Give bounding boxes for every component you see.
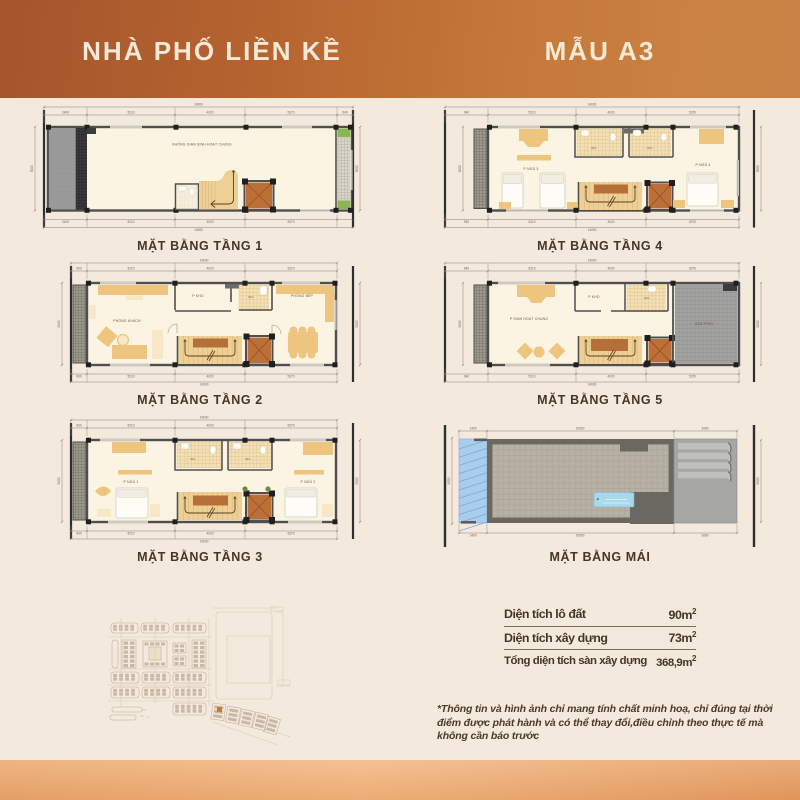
- svg-text:940: 940: [342, 111, 348, 115]
- svg-text:940: 940: [464, 111, 470, 115]
- svg-text:5370: 5370: [287, 424, 294, 428]
- svg-text:3080: 3080: [701, 534, 708, 538]
- svg-text:5370: 5370: [287, 532, 294, 536]
- svg-text:14000: 14000: [194, 228, 203, 232]
- svg-text:5210: 5210: [127, 111, 134, 115]
- svg-text:14000: 14000: [194, 103, 203, 107]
- svg-text:5210: 5210: [127, 267, 134, 271]
- svg-text:5370: 5370: [287, 220, 294, 224]
- svg-text:14000: 14000: [200, 383, 209, 387]
- svg-text:10600: 10600: [576, 534, 585, 538]
- svg-text:P NGỦ 4: P NGỦ 4: [696, 162, 711, 167]
- svg-text:4020: 4020: [206, 220, 213, 224]
- svg-text:14000: 14000: [200, 416, 209, 420]
- svg-text:5370: 5370: [689, 111, 696, 115]
- svg-text:900: 900: [76, 532, 82, 536]
- svg-text:5370: 5370: [287, 375, 294, 379]
- svg-text:PHÒNG KHÁCH: PHÒNG KHÁCH: [113, 318, 141, 323]
- svg-text:WC: WC: [248, 295, 254, 299]
- svg-text:4020: 4020: [206, 111, 213, 115]
- svg-text:P KHO: P KHO: [192, 294, 204, 298]
- svg-text:5370: 5370: [287, 267, 294, 271]
- svg-text:4020: 4020: [607, 220, 614, 224]
- svg-text:5210: 5210: [528, 220, 535, 224]
- svg-text:5000: 5000: [355, 165, 359, 172]
- svg-text:SÂN PHƠI: SÂN PHƠI: [695, 322, 713, 326]
- svg-text:5210: 5210: [528, 111, 535, 115]
- svg-text:5210: 5210: [528, 375, 535, 379]
- svg-text:5210: 5210: [528, 267, 535, 271]
- svg-text:5210: 5210: [127, 220, 134, 224]
- svg-text:4020: 4020: [607, 111, 614, 115]
- svg-text:940: 940: [464, 220, 470, 224]
- svg-text:4020: 4020: [206, 532, 213, 536]
- svg-text:5000: 5000: [756, 320, 760, 327]
- svg-text:5210: 5210: [127, 424, 134, 428]
- svg-text:14000: 14000: [588, 383, 597, 387]
- svg-text:5000: 5000: [756, 165, 760, 172]
- svg-text:5210: 5210: [127, 532, 134, 536]
- svg-text:5000: 5000: [458, 320, 462, 327]
- svg-text:5000: 5000: [57, 477, 61, 484]
- svg-text:5000: 5000: [355, 477, 359, 484]
- svg-text:P NGỦ 3: P NGỦ 3: [524, 166, 539, 171]
- svg-text:14000: 14000: [200, 540, 209, 544]
- svg-text:940: 940: [464, 375, 470, 379]
- svg-text:900: 900: [76, 424, 82, 428]
- svg-text:14000: 14000: [200, 259, 209, 263]
- svg-text:5000: 5000: [30, 165, 34, 172]
- svg-text:5000: 5000: [756, 477, 760, 484]
- svg-text:P SINH HOẠT CHUNG: P SINH HOẠT CHUNG: [510, 317, 548, 321]
- svg-text:900: 900: [76, 267, 82, 271]
- svg-text:14000: 14000: [588, 228, 597, 232]
- svg-text:4020: 4020: [607, 267, 614, 271]
- svg-text:P NGỦ 2: P NGỦ 2: [301, 479, 316, 484]
- svg-text:WC: WC: [245, 457, 251, 461]
- svg-text:4020: 4020: [206, 267, 213, 271]
- svg-text:5370: 5370: [689, 267, 696, 271]
- svg-text:5000: 5000: [57, 320, 61, 327]
- svg-text:5370: 5370: [689, 220, 696, 224]
- svg-text:14000: 14000: [588, 103, 597, 107]
- svg-text:P NGỦ 1: P NGỦ 1: [124, 479, 139, 484]
- svg-text:5000: 5000: [355, 320, 359, 327]
- svg-text:5000: 5000: [458, 165, 462, 172]
- svg-text:WC: WC: [591, 146, 597, 150]
- svg-text:10600: 10600: [576, 427, 585, 431]
- svg-text:KHÔNG GIAN SINH HOẠT CHUNG: KHÔNG GIAN SINH HOẠT CHUNG: [172, 142, 232, 147]
- svg-text:3080: 3080: [701, 427, 708, 431]
- svg-text:WC: WC: [190, 457, 196, 461]
- svg-text:WC: WC: [644, 296, 650, 300]
- svg-text:14000: 14000: [588, 259, 597, 263]
- svg-text:PHÒNG BẾP: PHÒNG BẾP: [291, 293, 313, 298]
- svg-text:5000: 5000: [447, 477, 451, 484]
- svg-text:4020: 4020: [607, 375, 614, 379]
- svg-text:1400: 1400: [469, 427, 476, 431]
- svg-text:940: 940: [464, 267, 470, 271]
- svg-text:4020: 4020: [206, 375, 213, 379]
- svg-text:5370: 5370: [689, 375, 696, 379]
- svg-text:4020: 4020: [206, 424, 213, 428]
- svg-text:1400: 1400: [469, 534, 476, 538]
- svg-text:2400: 2400: [62, 111, 69, 115]
- svg-text:WC: WC: [647, 146, 653, 150]
- svg-text:2400: 2400: [62, 220, 69, 224]
- svg-text:P KHO: P KHO: [588, 295, 600, 299]
- svg-text:5370: 5370: [287, 111, 294, 115]
- svg-text:5210: 5210: [127, 375, 134, 379]
- svg-text:900: 900: [76, 375, 82, 379]
